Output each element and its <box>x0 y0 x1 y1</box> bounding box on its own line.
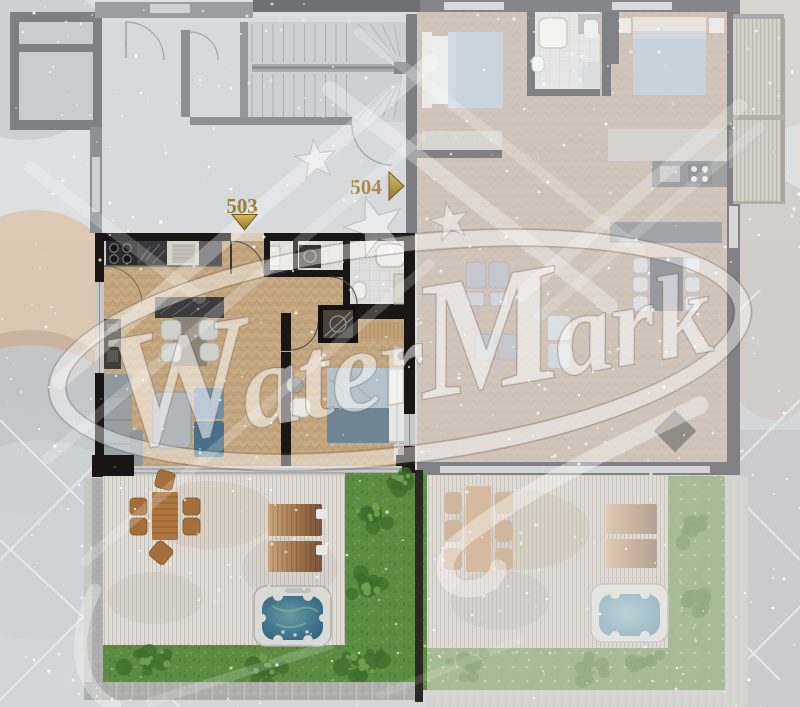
svg-text:504: 504 <box>350 175 382 199</box>
